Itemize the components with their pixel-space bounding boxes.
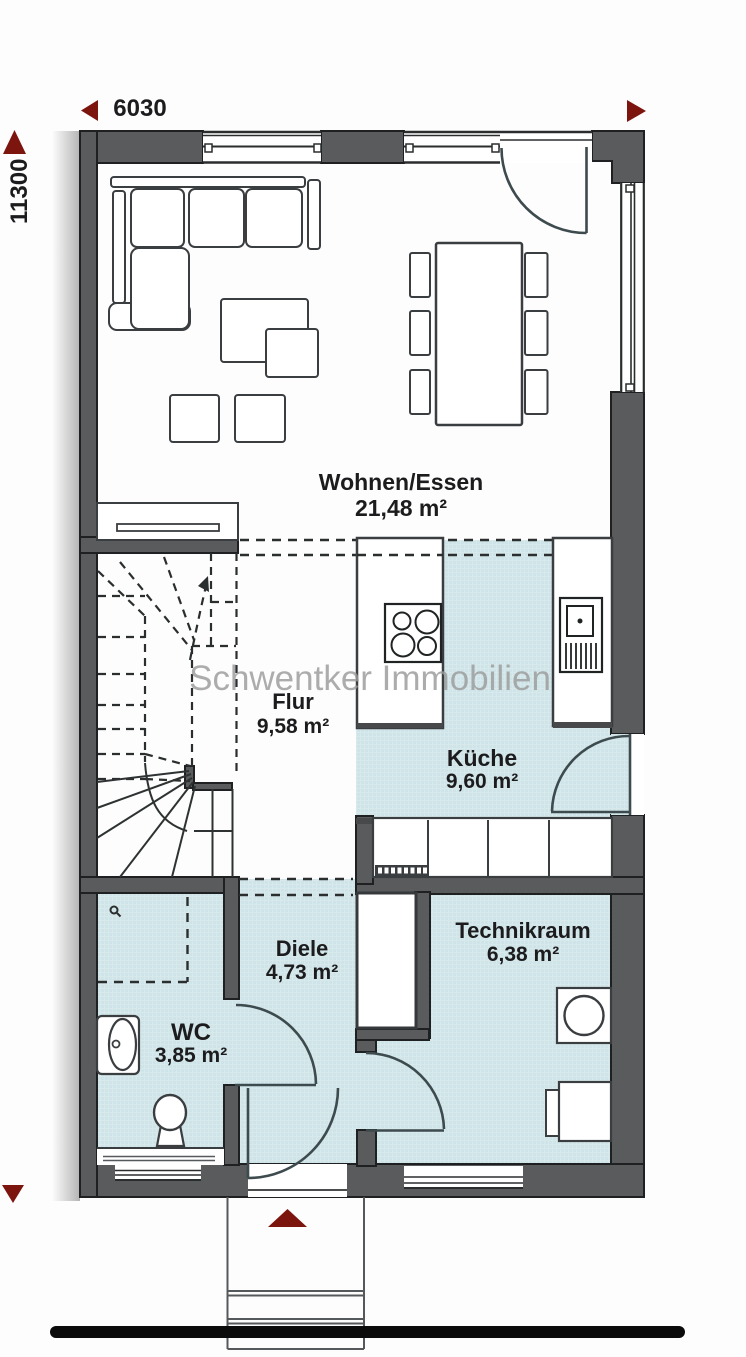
svg-text:Diele: Diele [276,936,329,961]
svg-text:Technikraum: Technikraum [455,918,590,943]
svg-text:Wohnen/Essen: Wohnen/Essen [319,469,483,495]
svg-text:9,58 m²: 9,58 m² [257,715,329,738]
svg-text:WC: WC [171,1019,211,1046]
svg-text:9,60 m²: 9,60 m² [446,770,518,793]
svg-text:6,38 m²: 6,38 m² [487,943,559,966]
svg-text:Küche: Küche [447,745,517,771]
svg-text:3,85 m²: 3,85 m² [155,1044,227,1067]
svg-text:11300: 11300 [6,159,33,224]
svg-text:4,73 m²: 4,73 m² [266,961,338,984]
svg-text:Schwentker Immobilien: Schwentker Immobilien [189,659,551,698]
svg-text:21,48 m²: 21,48 m² [355,495,447,521]
svg-text:6030: 6030 [113,95,166,122]
